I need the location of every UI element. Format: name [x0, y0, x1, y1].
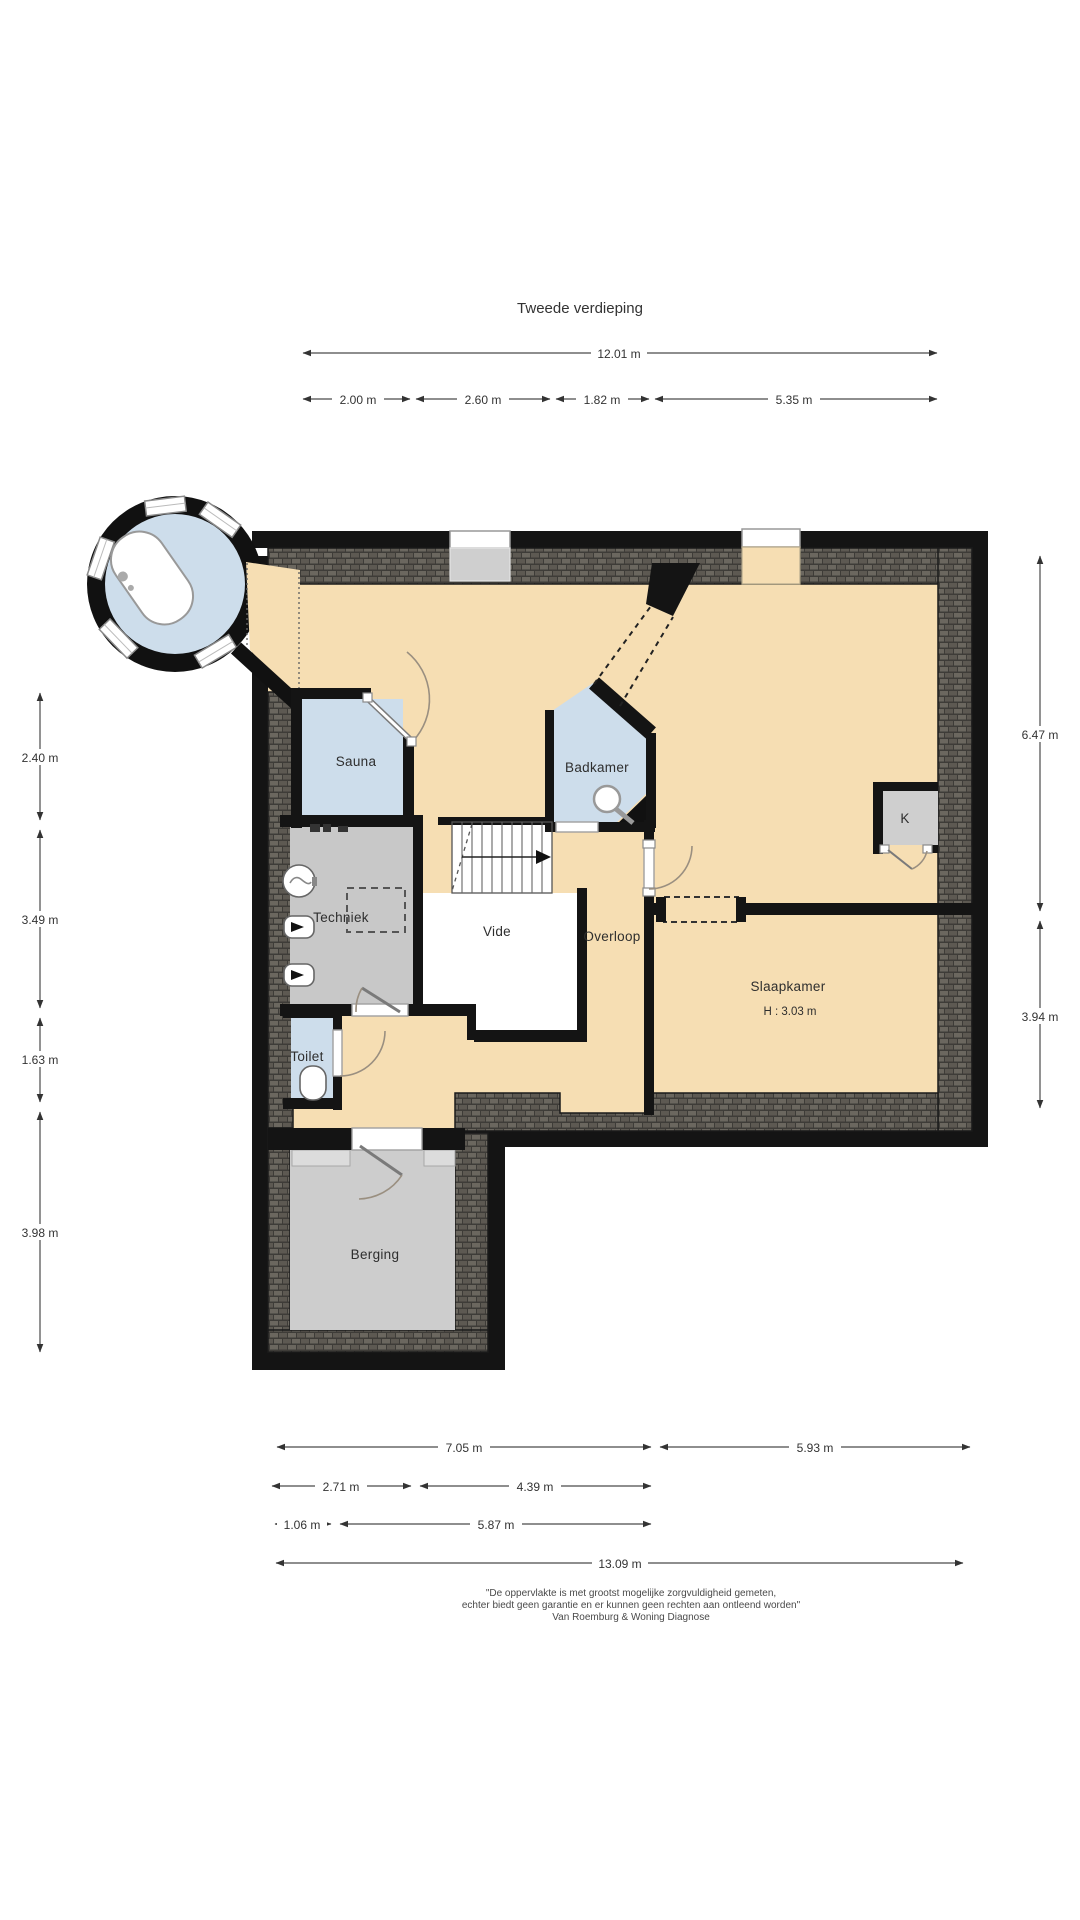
dimension-bottom-row3: 1.06 m 5.87 m	[275, 1516, 651, 1532]
svg-text:2.40 m: 2.40 m	[22, 751, 59, 765]
svg-text:1.06 m: 1.06 m	[284, 1518, 321, 1532]
svg-text:"De oppervlakte is met grootst: "De oppervlakte is met grootst mogelijke…	[486, 1588, 776, 1599]
room-berging-floor	[290, 1150, 455, 1330]
label-kast: K	[900, 811, 909, 826]
svg-text:6.47 m: 6.47 m	[1022, 728, 1059, 742]
berging-ledge	[292, 1150, 350, 1166]
berging-ledge	[424, 1150, 455, 1166]
dimension-right: 6.47 m 3.94 m	[1012, 556, 1068, 1108]
dimension-left: 2.40 m 3.49 m 1.63 m 3.98 m	[12, 693, 68, 1352]
label-berging: Berging	[351, 1247, 400, 1262]
dimension-bottom-row2: 2.71 m 4.39 m	[272, 1478, 651, 1494]
label-slaapkamer-height: H : 3.03 m	[763, 1006, 816, 1018]
svg-text:3.94 m: 3.94 m	[1022, 1010, 1059, 1024]
svg-text:5.93 m: 5.93 m	[797, 1441, 834, 1455]
boiler-unit	[283, 865, 315, 897]
turret	[87, 496, 304, 710]
label-slaapkamer: Slaapkamer	[750, 979, 825, 994]
label-toilet: Toilet	[290, 1049, 323, 1064]
label-vide: Vide	[483, 924, 511, 939]
dimension-top-segments: 2.00 m 2.60 m 1.82 m 5.35 m	[303, 391, 937, 407]
svg-text:1.82 m: 1.82 m	[584, 393, 621, 407]
svg-text:1.63 m: 1.63 m	[22, 1053, 59, 1067]
wardrobe-niche	[656, 897, 746, 922]
page-title: Tweede verdieping	[517, 300, 643, 317]
svg-text:3.98 m: 3.98 m	[22, 1226, 59, 1240]
skylight-window	[742, 529, 800, 584]
svg-text:2.60 m: 2.60 m	[465, 393, 502, 407]
svg-text:5.35 m: 5.35 m	[776, 393, 813, 407]
disclaimer: "De oppervlakte is met grootst mogelijke…	[462, 1588, 801, 1623]
label-sauna: Sauna	[336, 754, 377, 769]
svg-text:4.39 m: 4.39 m	[517, 1480, 554, 1494]
dimension-bottom-row1: 7.05 m 5.93 m	[277, 1439, 970, 1455]
svg-text:3.49 m: 3.49 m	[22, 913, 59, 927]
svg-text:7.05 m: 7.05 m	[446, 1441, 483, 1455]
label-techniek: Techniek	[313, 910, 369, 925]
dimension-top-total: 12.01 m	[303, 345, 937, 361]
svg-text:2.71 m: 2.71 m	[323, 1480, 360, 1494]
svg-text:echter biedt geen garantie en: echter biedt geen garantie en er kunnen …	[462, 1600, 801, 1611]
dimension-bottom-total: 13.09 m	[276, 1555, 963, 1571]
floorplan-page: Tweede verdieping	[0, 0, 1080, 1920]
svg-text:5.87 m: 5.87 m	[478, 1518, 515, 1532]
floorplan-drawing: Tweede verdieping	[0, 0, 1080, 1920]
label-badkamer: Badkamer	[565, 760, 629, 775]
label-overloop: Overloop	[583, 929, 640, 944]
svg-text:Van Roemburg & Woning Diagnose: Van Roemburg & Woning Diagnose	[552, 1612, 710, 1623]
svg-text:13.09 m: 13.09 m	[598, 1557, 641, 1571]
skylight-window	[450, 531, 510, 581]
toilet-fixture	[300, 1066, 326, 1100]
door-badkamer-opening	[556, 822, 598, 832]
svg-text:12.01 m: 12.01 m	[597, 347, 640, 361]
closet-k-floor	[883, 791, 938, 845]
svg-text:2.00 m: 2.00 m	[340, 393, 377, 407]
